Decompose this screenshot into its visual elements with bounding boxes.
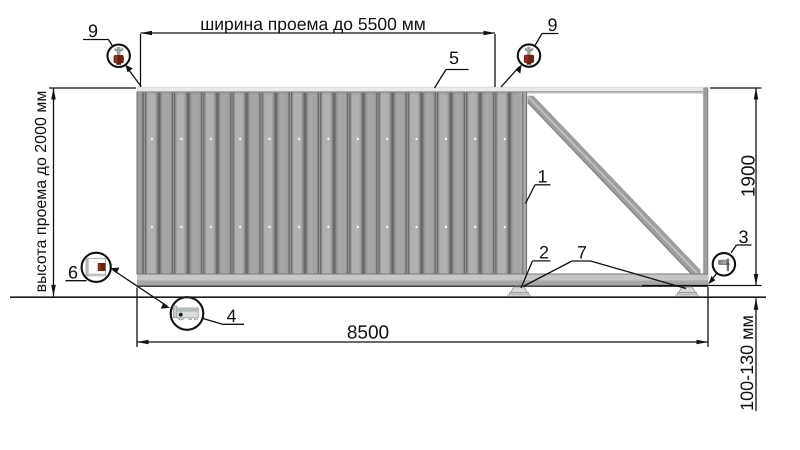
svg-text:2: 2 xyxy=(539,243,549,263)
svg-text:ширина проема до 5500 мм: ширина проема до 5500 мм xyxy=(200,14,426,34)
svg-text:высота проема до 2000 мм: высота проема до 2000 мм xyxy=(33,91,50,293)
svg-text:9: 9 xyxy=(547,15,557,35)
svg-text:6: 6 xyxy=(68,263,78,283)
svg-text:1: 1 xyxy=(537,167,547,187)
svg-text:9: 9 xyxy=(88,21,98,41)
svg-text:3: 3 xyxy=(738,227,748,247)
svg-text:4: 4 xyxy=(226,306,236,326)
svg-text:1900: 1900 xyxy=(739,155,760,197)
svg-text:100-130 мм: 100-130 мм xyxy=(737,315,757,411)
svg-text:5: 5 xyxy=(449,48,459,68)
svg-text:8500: 8500 xyxy=(347,323,389,344)
svg-text:7: 7 xyxy=(577,243,587,263)
